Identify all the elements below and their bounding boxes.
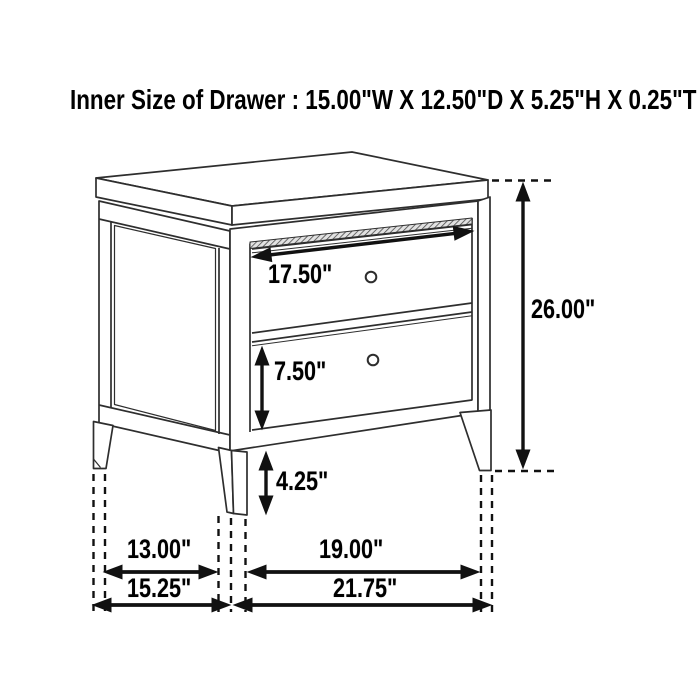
furniture-dimension-diagram: Inner Size of Drawer : 15.00"W X 12.50"D…: [0, 0, 700, 700]
dimension-label-overall-width: 21.75": [333, 575, 397, 602]
drawer-knob: [366, 272, 377, 283]
right-side-sliver: [478, 197, 490, 413]
drawer-knob: [368, 355, 379, 366]
side-panel: [99, 201, 230, 453]
dimension-label-inner-leg-depth: 13.00": [127, 536, 191, 563]
dimension-label-overall-height: 26.00": [531, 296, 595, 323]
back-left-leg: [94, 422, 114, 469]
front-right-leg: [460, 410, 491, 471]
dimension-label-leg-height: 4.25": [276, 468, 328, 495]
arrow-overall-height: [516, 183, 530, 468]
dimension-label-inner-leg-width: 19.00": [319, 536, 383, 563]
arrow-leg-height: [259, 452, 273, 514]
diagram-title: Inner Size of Drawer : 15.00"W X 12.50"D…: [70, 86, 630, 114]
dimension-label-overall-depth: 15.25": [127, 575, 191, 602]
dimension-label-drawer-front-width: 17.50": [268, 261, 332, 288]
dimension-label-bottom-drawer-height: 7.50": [274, 358, 326, 385]
front-left-leg: [219, 448, 248, 516]
